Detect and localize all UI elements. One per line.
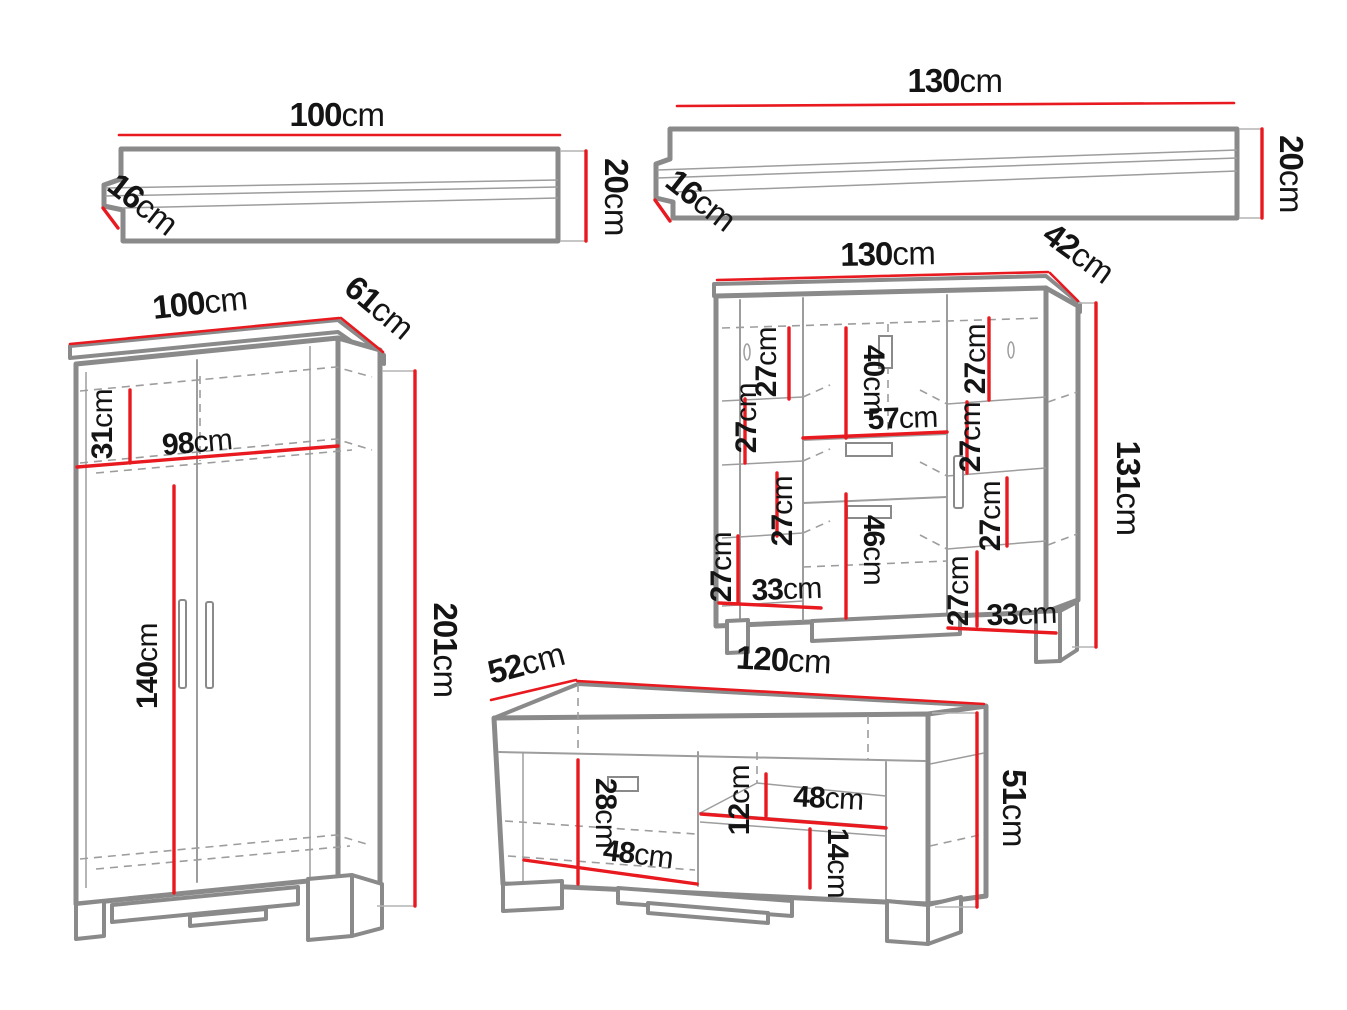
dim-shelf-b-width: 130cm bbox=[907, 62, 1002, 99]
dim-cabinet-gap-7: 27cm bbox=[974, 481, 1007, 551]
dim-cabinet-gap-5: 27cm bbox=[959, 324, 992, 394]
dim-tv-drawer-height: 14cm bbox=[821, 828, 854, 898]
dim-cabinet-bottom-right: 33cm bbox=[986, 597, 1057, 632]
dim-wardrobe-width: 100cm bbox=[151, 279, 249, 326]
piece-cabinet: 130cm 42cm 131cm 40cm 57cm 46cm 27cm 27c… bbox=[705, 215, 1147, 662]
dim-line-shelf-b-width bbox=[677, 103, 1234, 106]
piece-wall-shelf-a: 100cm 16cm 20cm bbox=[101, 96, 635, 242]
dim-cabinet-gap-6: 27cm bbox=[954, 402, 987, 472]
dim-cabinet-bottom-left: 33cm bbox=[751, 572, 822, 607]
tv-foot-left bbox=[503, 881, 562, 911]
dim-wardrobe-inner-width: 98cm bbox=[161, 423, 234, 462]
dim-cabinet-gap-3: 27cm bbox=[766, 476, 799, 546]
piece-tv-stand: 52cm 120cm 51cm 28cm 12cm 48cm 14cm 48cm bbox=[484, 635, 1033, 944]
dim-cabinet-gap-4: 27cm bbox=[705, 532, 738, 602]
dim-shelf-b-height: 20cm bbox=[1273, 135, 1310, 213]
piece-wall-shelf-b: 130cm 16cm 20cm bbox=[655, 62, 1310, 238]
dim-tv-height: 51cm bbox=[996, 769, 1033, 847]
dim-tv-niche-height: 12cm bbox=[723, 765, 756, 835]
tv-foot-right-side bbox=[928, 897, 961, 944]
dim-tv-niche-width: 48cm bbox=[792, 780, 864, 817]
wardrobe-handle-left bbox=[179, 600, 186, 688]
dim-cabinet-height: 131cm bbox=[1110, 440, 1147, 535]
cabinet-plinth bbox=[812, 614, 960, 641]
dim-cabinet-width: 130cm bbox=[840, 234, 936, 273]
dim-cabinet-drawer-width: 57cm bbox=[867, 401, 938, 436]
dim-shelf-a-height: 20cm bbox=[598, 158, 635, 236]
wardrobe-handle-right bbox=[206, 602, 213, 688]
dim-cabinet-lower-door: 46cm bbox=[857, 515, 890, 585]
dim-wardrobe-hanging: 140cm bbox=[131, 623, 164, 709]
cabinet-drawer-handle bbox=[846, 443, 892, 456]
shelf-b-body bbox=[656, 129, 1237, 218]
wardrobe-foot-left bbox=[76, 901, 104, 939]
tv-foot-right bbox=[887, 901, 928, 944]
dim-tv-width: 120cm bbox=[735, 639, 832, 681]
dim-shelf-a-width: 100cm bbox=[289, 96, 384, 133]
dim-cabinet-gap-2: 27cm bbox=[730, 383, 763, 453]
wardrobe-side-face bbox=[338, 338, 380, 890]
furniture-dimensions-diagram: 100cm 16cm 20cm 130cm 16cm 20cm bbox=[0, 0, 1347, 1010]
dim-tv-depth: 52cm bbox=[484, 635, 569, 691]
dim-wardrobe-top-section: 31cm bbox=[86, 389, 119, 459]
dim-wardrobe-height: 201cm bbox=[427, 602, 464, 697]
piece-wardrobe: 100cm 61cm 31cm 98cm 140cm 201cm bbox=[70, 268, 464, 940]
wardrobe-foot-right bbox=[308, 875, 352, 940]
cabinet-foot-right-side bbox=[1060, 602, 1077, 661]
cabinet-side-face bbox=[1046, 288, 1078, 612]
dim-cabinet-gap-8: 27cm bbox=[942, 556, 975, 626]
